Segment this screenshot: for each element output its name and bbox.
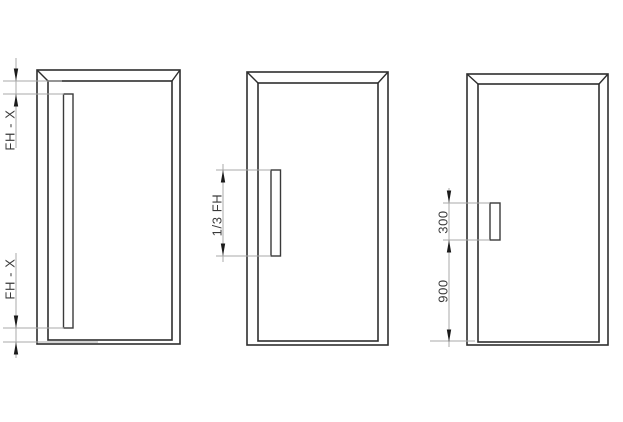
dim-label-900: 900	[436, 279, 451, 303]
dim-label-one-third-fh: 1/3 FH	[210, 194, 225, 237]
arrowhead-down-icon	[221, 244, 225, 257]
door-handle-bar	[490, 203, 500, 240]
dim-label-fh-x-bottom: FH - X	[3, 258, 18, 299]
arrowhead-down-icon	[447, 330, 451, 343]
door-one-third-handle	[247, 72, 388, 345]
door-handle-technical-drawing: FH - X FH - X 1/3 FH 3	[0, 0, 623, 422]
dim-label-300: 300	[436, 210, 451, 234]
arrowhead-up-icon	[14, 94, 18, 107]
arrowhead-down-icon	[14, 69, 18, 82]
arrowhead-down-icon	[447, 191, 451, 204]
arrowhead-up-icon	[221, 170, 225, 183]
door-handle-bar	[64, 94, 74, 328]
arrowhead-down-icon	[14, 316, 18, 329]
drawing-canvas: FH - X FH - X 1/3 FH 3	[0, 0, 623, 422]
door-handle-bar	[271, 170, 281, 256]
arrowhead-up-icon	[14, 342, 18, 355]
arrowhead-up-icon	[447, 240, 451, 253]
dim-label-fh-x-top: FH - X	[3, 109, 18, 150]
door-full-length-handle	[37, 70, 180, 344]
door-short-handle	[467, 74, 608, 345]
